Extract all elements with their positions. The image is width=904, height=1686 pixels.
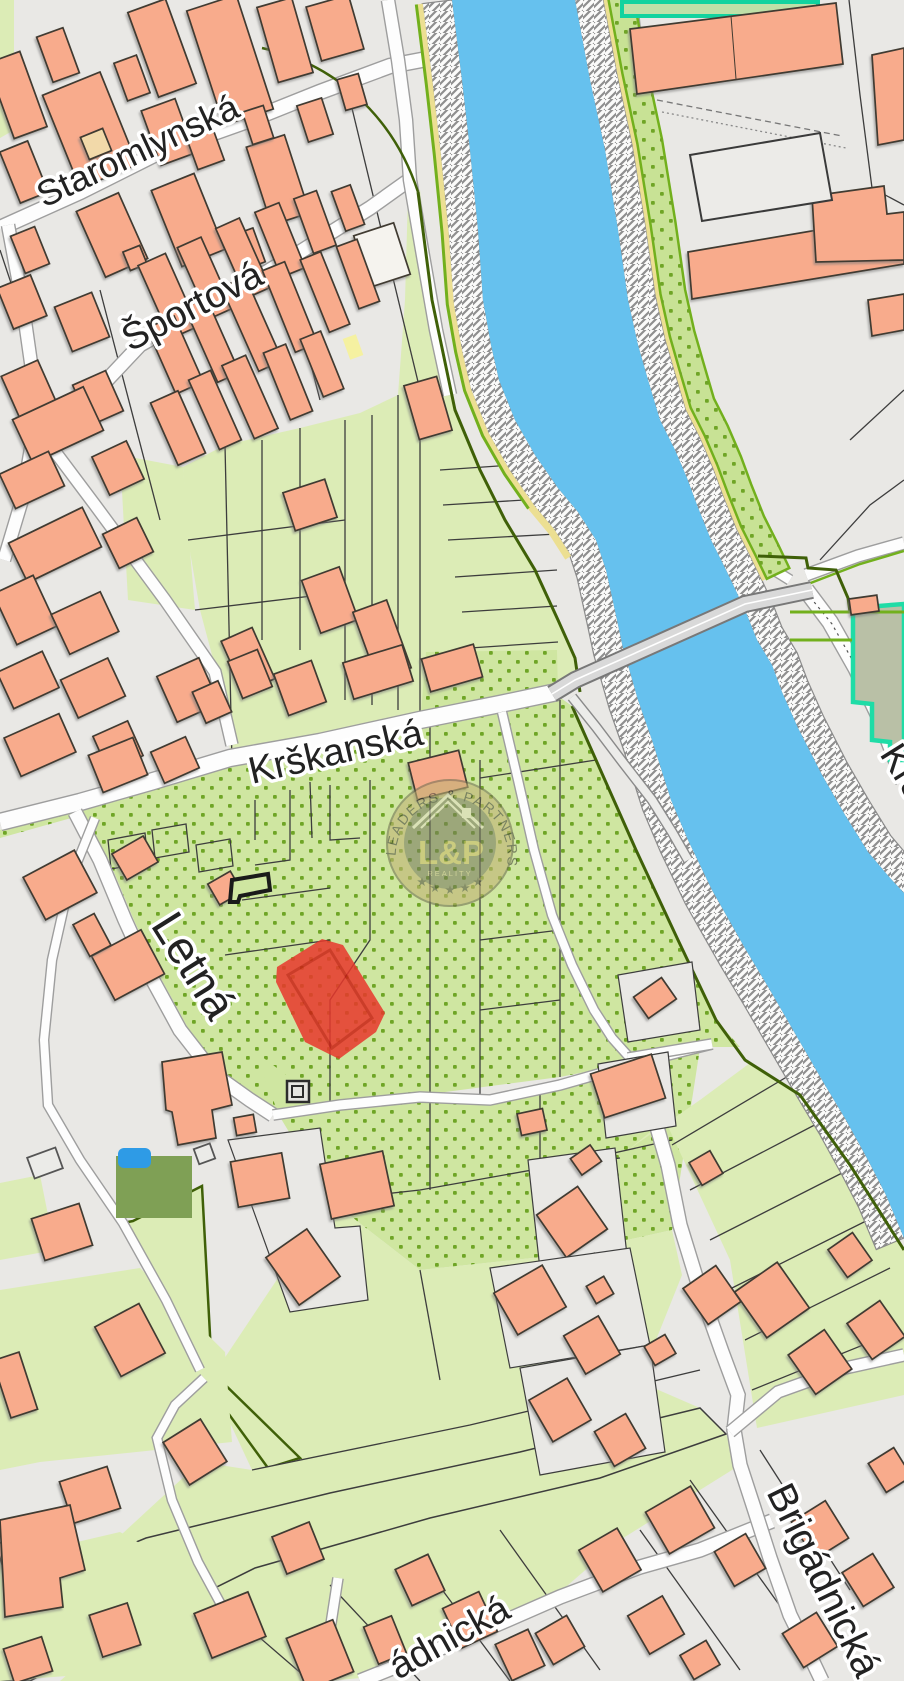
svg-text:★: ★ xyxy=(459,881,470,895)
svg-text:REALITY: REALITY xyxy=(427,869,472,878)
svg-text:★: ★ xyxy=(416,875,427,889)
svg-text:★: ★ xyxy=(444,883,455,897)
svg-text:★: ★ xyxy=(472,875,483,889)
svg-text:L&P: L&P xyxy=(418,834,484,871)
svg-text:★: ★ xyxy=(429,881,440,895)
